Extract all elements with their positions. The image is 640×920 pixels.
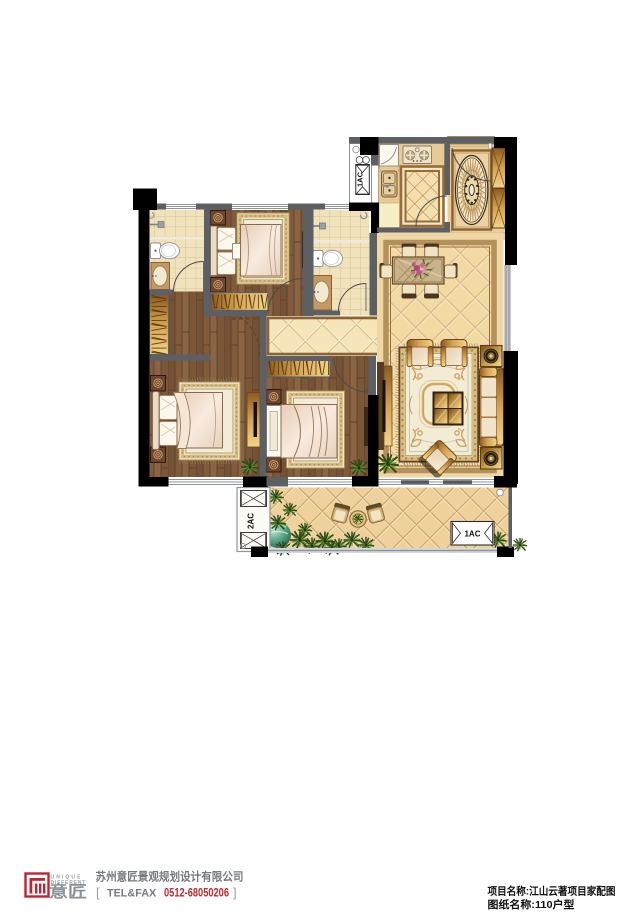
svg-text:意匠: 意匠 bbox=[49, 882, 87, 901]
svg-text:苏州意匠景观规划设计有限公司: 苏州意匠景观规划设计有限公司 bbox=[96, 870, 244, 884]
svg-text:TEL&FAX: TEL&FAX bbox=[107, 888, 157, 900]
svg-text:[: [ bbox=[96, 885, 100, 900]
svg-text:1AC: 1AC bbox=[356, 171, 365, 187]
svg-text:]: ] bbox=[233, 885, 237, 900]
svg-text:2AC: 2AC bbox=[247, 513, 256, 529]
svg-text:0512-68050206: 0512-68050206 bbox=[164, 888, 229, 900]
svg-text:1AC: 1AC bbox=[464, 530, 480, 539]
svg-text:图纸名称:110户型: 图纸名称:110户型 bbox=[488, 898, 576, 911]
svg-text:项目名称:江山云著项目家配图: 项目名称:江山云著项目家配图 bbox=[488, 885, 616, 898]
